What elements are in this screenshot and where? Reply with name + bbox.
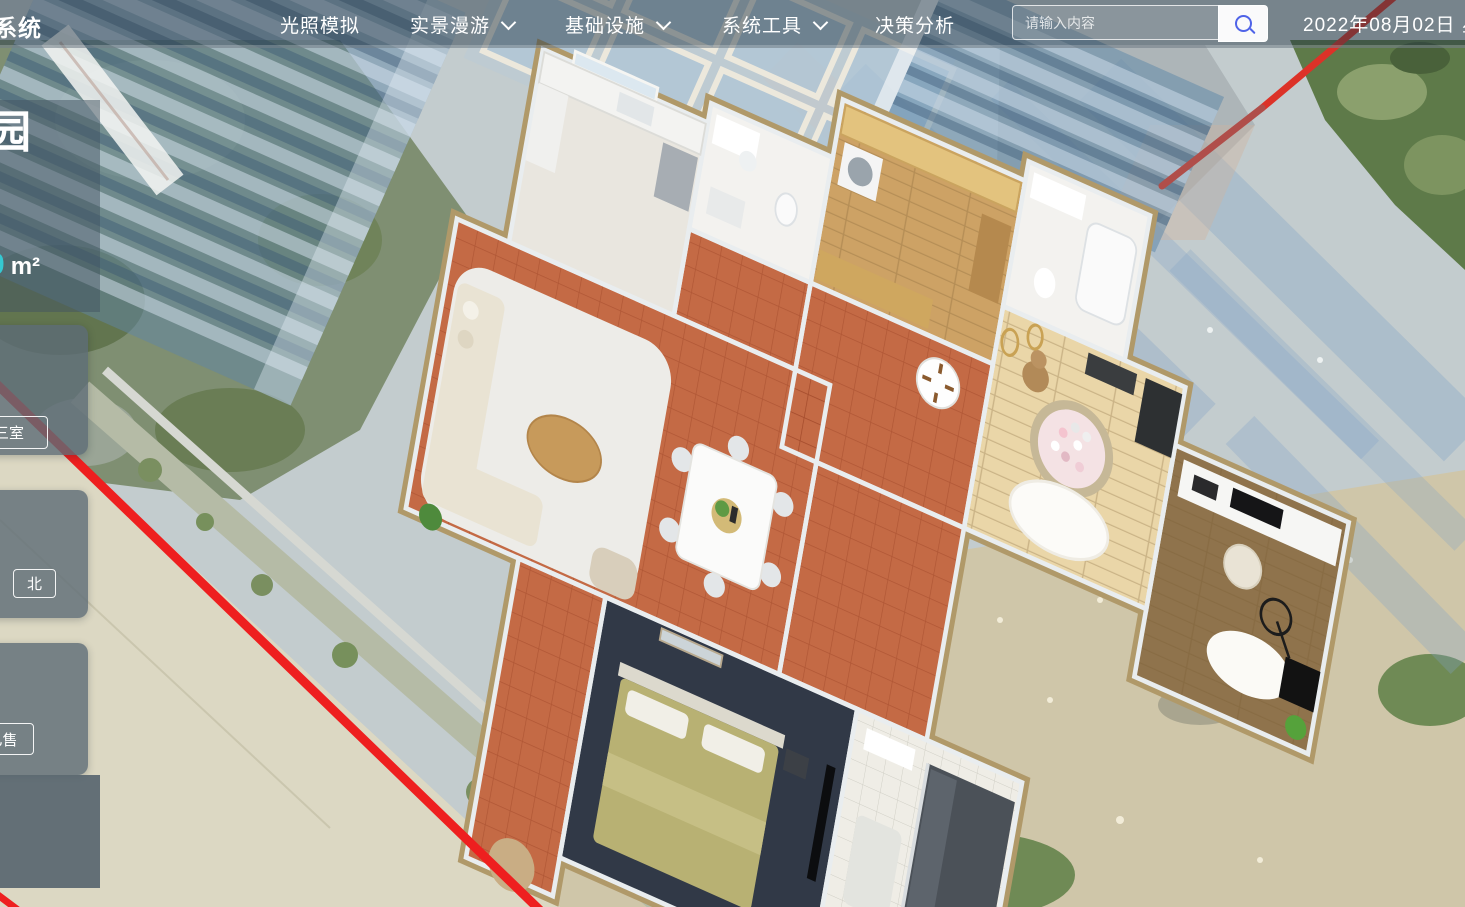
- search-box: [1012, 5, 1268, 40]
- area-value: 0: [0, 248, 5, 281]
- nav-item-system-tools[interactable]: 系统工具: [722, 11, 826, 38]
- chevron-down-icon: [501, 15, 517, 31]
- room-type-button[interactable]: 三室: [0, 416, 48, 449]
- community-name-label: 园: [0, 96, 31, 160]
- sidebar-bottom-panel: [0, 775, 100, 888]
- nav-item-decision-analysis[interactable]: 决策分析: [875, 11, 955, 38]
- sale-status-button[interactable]: 已售: [0, 723, 34, 755]
- nav-item-lighting-simulation[interactable]: 光照模拟: [280, 11, 360, 38]
- search-button[interactable]: [1218, 5, 1268, 42]
- search-icon: [1235, 15, 1252, 32]
- top-nav-bar: 系统 光照模拟 实景漫游 基础设施 系统工具 决策分析 2022年08月02日 …: [0, 0, 1465, 48]
- nav-item-scene-roaming[interactable]: 实景漫游: [410, 11, 514, 38]
- area-readout: 0m²: [0, 248, 40, 282]
- app-window: 园 0m² 三室 北 已售 系统 光照模拟 实景漫游 基础设施 系统工具 决策分…: [0, 0, 1465, 907]
- area-unit: m²: [11, 253, 40, 280]
- search-input[interactable]: [1012, 5, 1218, 40]
- sale-status-card: [0, 643, 88, 775]
- chevron-down-icon: [813, 15, 829, 31]
- orientation-north-button[interactable]: 北: [13, 569, 56, 598]
- nav-item-infrastructure[interactable]: 基础设施: [565, 11, 669, 38]
- app-title: 系统: [0, 9, 42, 43]
- date-label: 2022年08月02日 星期: [1303, 10, 1465, 37]
- scene-3d-viewport[interactable]: [0, 0, 1465, 907]
- chevron-down-icon: [656, 15, 672, 31]
- orientation-card: [0, 490, 88, 618]
